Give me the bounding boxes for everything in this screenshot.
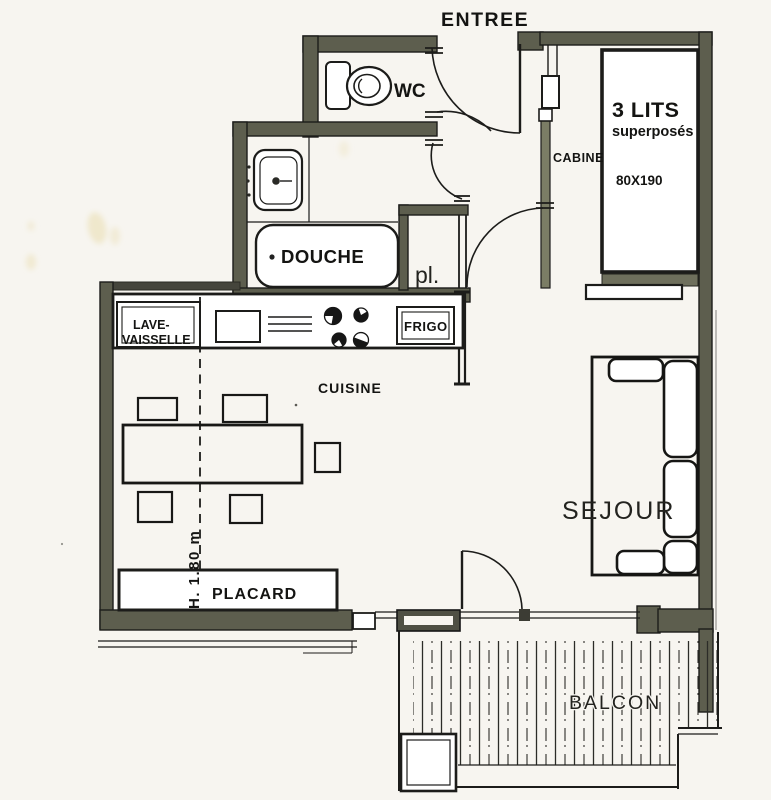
label-entree: ENTREE [441, 9, 529, 31]
south-wall-pillar [637, 606, 660, 633]
window-jamb [353, 613, 375, 629]
label-dishwasher-line2: VAISSELLE [122, 333, 191, 347]
label-cabine: CABINE [553, 151, 604, 165]
dining-set [123, 395, 340, 523]
south-wall-west [100, 610, 352, 630]
cabine-door-arc [467, 208, 543, 287]
tub-drain [269, 254, 274, 259]
entry-door-pillar [518, 32, 543, 50]
north-wall-west [100, 282, 240, 290]
label-closet-small: pl. [415, 262, 439, 288]
sofa-armrest [617, 551, 664, 574]
balcony-door-arc [462, 551, 522, 609]
bathroom-west-wall [233, 122, 247, 302]
label-sejour: SEJOUR [562, 497, 675, 525]
label-bed-line1: 3 LITS [612, 98, 680, 122]
entry-door-arc [432, 48, 520, 133]
closet-east-wall [459, 215, 466, 288]
floor-plan-drawing: ENTREE WC 3 LITS superposés 80X190 CABIN… [0, 0, 771, 800]
chair [138, 492, 172, 522]
balcony-pillar [401, 734, 456, 791]
label-dishwasher-line1: LAVE- [133, 318, 170, 332]
label-fridge: FRIGO [404, 319, 448, 334]
chair [315, 443, 340, 472]
label-height-note: H. 1.80 m [186, 530, 203, 609]
label-douche: DOUCHE [281, 246, 364, 267]
bathroom-north-wall [233, 122, 437, 136]
east-wall [699, 32, 712, 632]
chair [230, 495, 262, 523]
label-placard: PLACARD [212, 586, 297, 603]
deck-hatching [413, 641, 458, 733]
door-strike-block [519, 609, 530, 621]
wc-door-arc [437, 111, 491, 131]
dining-table [123, 425, 302, 483]
sofa [592, 357, 698, 575]
label-balcon: BALCON [569, 692, 661, 714]
label-wc: WC [394, 81, 426, 102]
sofa-cushion [664, 361, 697, 457]
label-bed-dim: 80X190 [616, 173, 663, 188]
closet-west-wall [399, 205, 408, 290]
scanned-floor-plan-page: ENTREE WC 3 LITS superposés 80X190 CABIN… [0, 0, 771, 800]
sofa-armrest [609, 359, 663, 381]
west-wall [100, 282, 113, 629]
shelf [586, 285, 682, 299]
water-heater [539, 45, 559, 121]
north-wall-east [540, 32, 712, 45]
chair [138, 398, 177, 420]
scan-speckle [295, 404, 298, 407]
closet-north-wall [399, 205, 468, 215]
deck-hatching [676, 641, 718, 729]
sofa-cushion [664, 541, 697, 573]
wc-north-wall [303, 36, 437, 52]
bathroom-door-arc [431, 143, 462, 199]
toilet [326, 62, 391, 109]
chair [223, 395, 267, 422]
label-bed-line2: superposés [612, 124, 693, 140]
scan-speckle [61, 543, 63, 545]
label-cuisine: CUISINE [318, 380, 382, 396]
balcony [399, 631, 722, 791]
washbasin-icon [246, 150, 302, 210]
